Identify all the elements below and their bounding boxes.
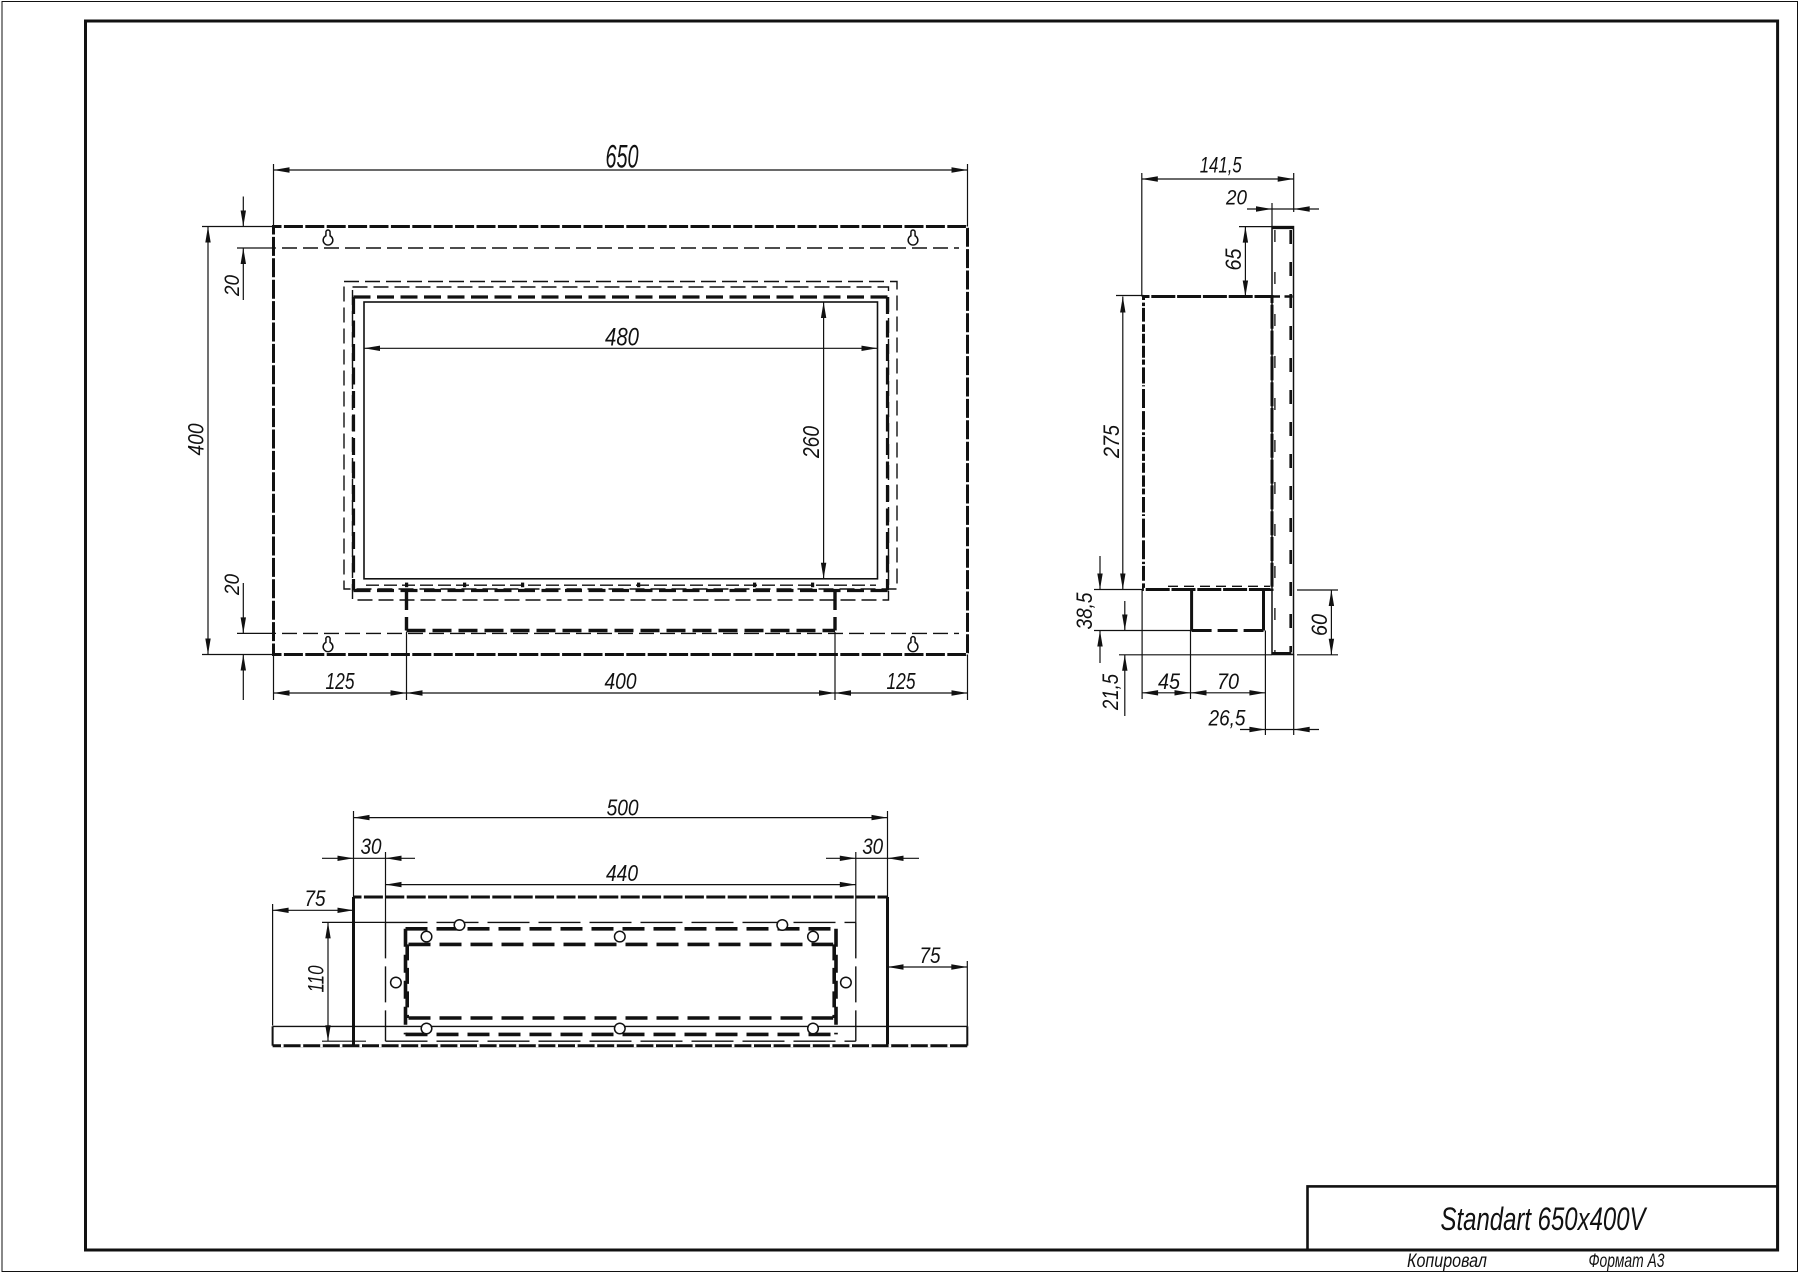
svg-text:400: 400 bbox=[184, 423, 209, 456]
svg-text:500: 500 bbox=[607, 795, 639, 821]
svg-text:125: 125 bbox=[326, 668, 355, 694]
svg-text:60: 60 bbox=[1307, 613, 1332, 636]
svg-text:260: 260 bbox=[798, 426, 824, 459]
svg-text:26,5: 26,5 bbox=[1208, 706, 1247, 731]
svg-text:70: 70 bbox=[1217, 669, 1240, 694]
svg-text:75: 75 bbox=[305, 886, 327, 911]
svg-text:45: 45 bbox=[1158, 669, 1181, 694]
svg-text:20: 20 bbox=[1225, 187, 1247, 210]
svg-text:38,5: 38,5 bbox=[1072, 592, 1097, 630]
svg-text:110: 110 bbox=[304, 965, 329, 993]
svg-text:75: 75 bbox=[920, 943, 942, 968]
svg-text:440: 440 bbox=[606, 860, 638, 886]
svg-text:141,5: 141,5 bbox=[1200, 153, 1243, 178]
svg-text:Копировал: Копировал bbox=[1407, 1251, 1487, 1272]
svg-text:30: 30 bbox=[361, 834, 383, 859]
svg-text:275: 275 bbox=[1099, 424, 1124, 459]
svg-text:65: 65 bbox=[1221, 248, 1246, 271]
svg-text:20: 20 bbox=[221, 275, 244, 297]
svg-text:Формат А3: Формат А3 bbox=[1589, 1251, 1665, 1272]
svg-text:21,5: 21,5 bbox=[1098, 673, 1123, 710]
svg-text:Standart 650x400V: Standart 650x400V bbox=[1441, 1201, 1648, 1237]
svg-text:20: 20 bbox=[221, 574, 244, 596]
svg-text:480: 480 bbox=[605, 324, 639, 352]
svg-text:650: 650 bbox=[606, 139, 639, 175]
svg-text:30: 30 bbox=[862, 834, 884, 859]
svg-text:400: 400 bbox=[605, 668, 637, 694]
svg-text:125: 125 bbox=[887, 668, 916, 694]
